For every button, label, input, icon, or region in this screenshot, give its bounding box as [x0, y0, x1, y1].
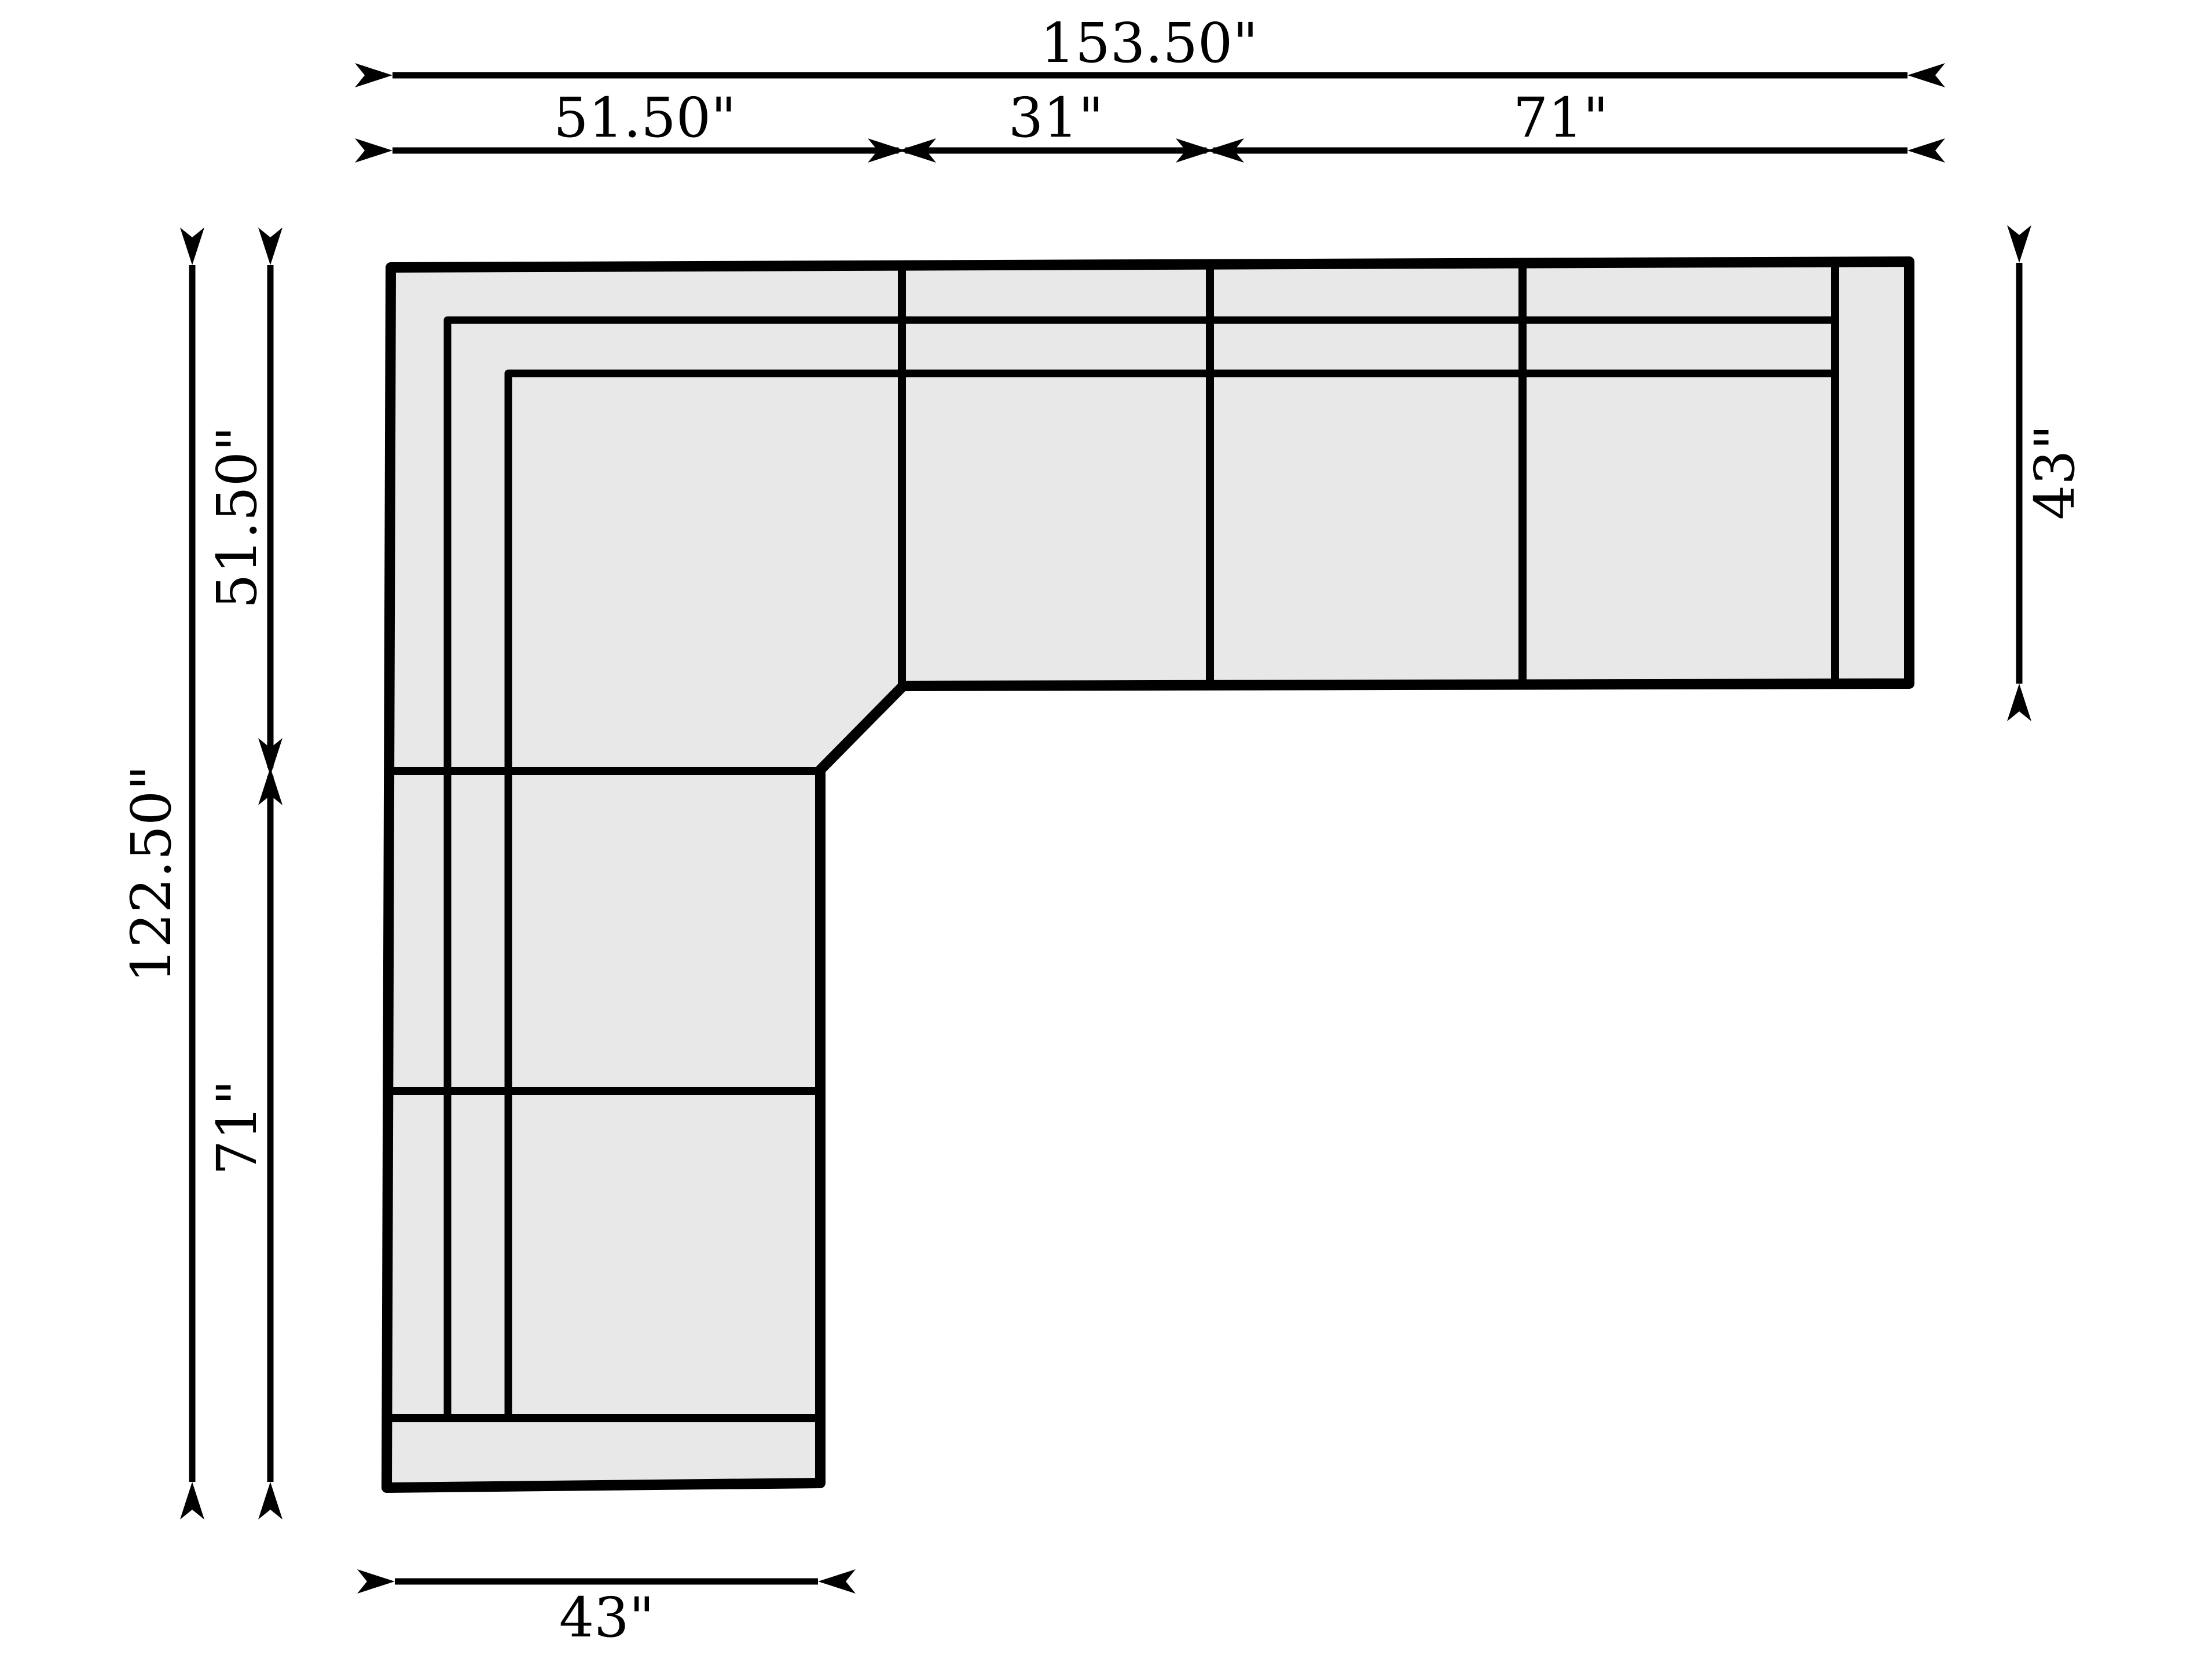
- dim-label-right-depth: 43": [2023, 425, 2087, 520]
- dim-label-total-width: 153.50": [1040, 12, 1258, 75]
- dim-label-top-left-section: 51.50": [553, 86, 736, 150]
- diagram-canvas: 153.50" 51.50" 31" 71" 122.50" 51.50" 71…: [0, 0, 2212, 1659]
- dim-label-left-lower-section: 71": [206, 1080, 269, 1176]
- dim-label-left-total-depth: 122.50": [120, 765, 184, 983]
- sofa-dimension-diagram: 153.50" 51.50" 31" 71" 122.50" 51.50" 71…: [0, 0, 2212, 1659]
- dim-label-left-upper-section: 51.50": [206, 426, 269, 609]
- sofa-outline: [387, 262, 1909, 1488]
- dim-label-bottom-width: 43": [559, 1586, 655, 1650]
- dim-label-top-right-section: 71": [1513, 86, 1609, 150]
- dim-label-top-middle-section: 31": [1008, 86, 1104, 150]
